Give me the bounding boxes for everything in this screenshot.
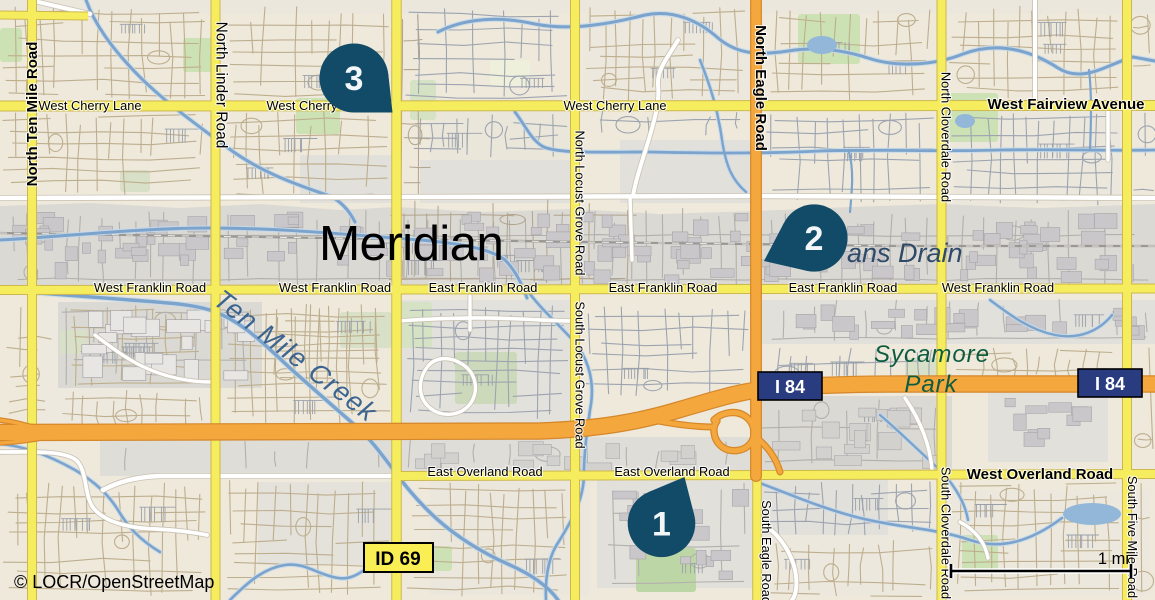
svg-text:East Franklin Road: East Franklin Road [429,280,538,295]
svg-text:North Eagle Road: North Eagle Road [752,25,769,151]
svg-text:© LOCR/OpenStreetMap: © LOCR/OpenStreetMap [14,572,214,592]
svg-text:I 84: I 84 [1095,374,1125,394]
svg-text:East Overland Road: East Overland Road [427,464,542,479]
svg-text:Park: Park [904,371,958,398]
svg-text:Meridian: Meridian [319,216,503,271]
svg-text:West Overland Road: West Overland Road [967,466,1113,483]
svg-text:North Cloverdale Road: North Cloverdale Road [939,72,954,202]
svg-text:North Ten Mile Road: North Ten Mile Road [24,42,41,187]
svg-text:ans Drain: ans Drain [847,238,963,268]
svg-text:I 84: I 84 [775,377,805,397]
svg-text:West Franklin Road: West Franklin Road [94,280,206,295]
svg-text:North Linder Road: North Linder Road [213,22,230,149]
svg-text:North Locust Grove Road: North Locust Grove Road [573,130,588,275]
svg-text:East Franklin Road: East Franklin Road [609,280,718,295]
svg-text:South Eagle Road: South Eagle Road [759,500,774,600]
svg-text:1: 1 [652,505,671,543]
svg-text:West Fairview Avenue: West Fairview Avenue [987,96,1144,113]
svg-text:1 mi: 1 mi [1098,550,1129,568]
svg-text:2: 2 [805,220,824,258]
svg-text:3: 3 [345,60,364,98]
svg-text:South Cloverdale Road: South Cloverdale Road [939,467,954,599]
svg-text:ID 69: ID 69 [375,549,420,570]
svg-text:West Franklin Road: West Franklin Road [279,280,391,295]
svg-text:South Five Mile Road: South Five Mile Road [1125,476,1140,598]
svg-text:Sycamore: Sycamore [874,341,990,368]
svg-text:East Overland Road: East Overland Road [614,464,729,479]
svg-text:West Franklin Road: West Franklin Road [942,280,1054,295]
svg-text:East Franklin Road: East Franklin Road [789,280,898,295]
svg-text:West Cherry Lane: West Cherry Lane [39,98,142,113]
svg-text:South Locust Grove Road: South Locust Grove Road [573,301,588,448]
svg-text:West Cherry Lane: West Cherry Lane [564,98,667,113]
